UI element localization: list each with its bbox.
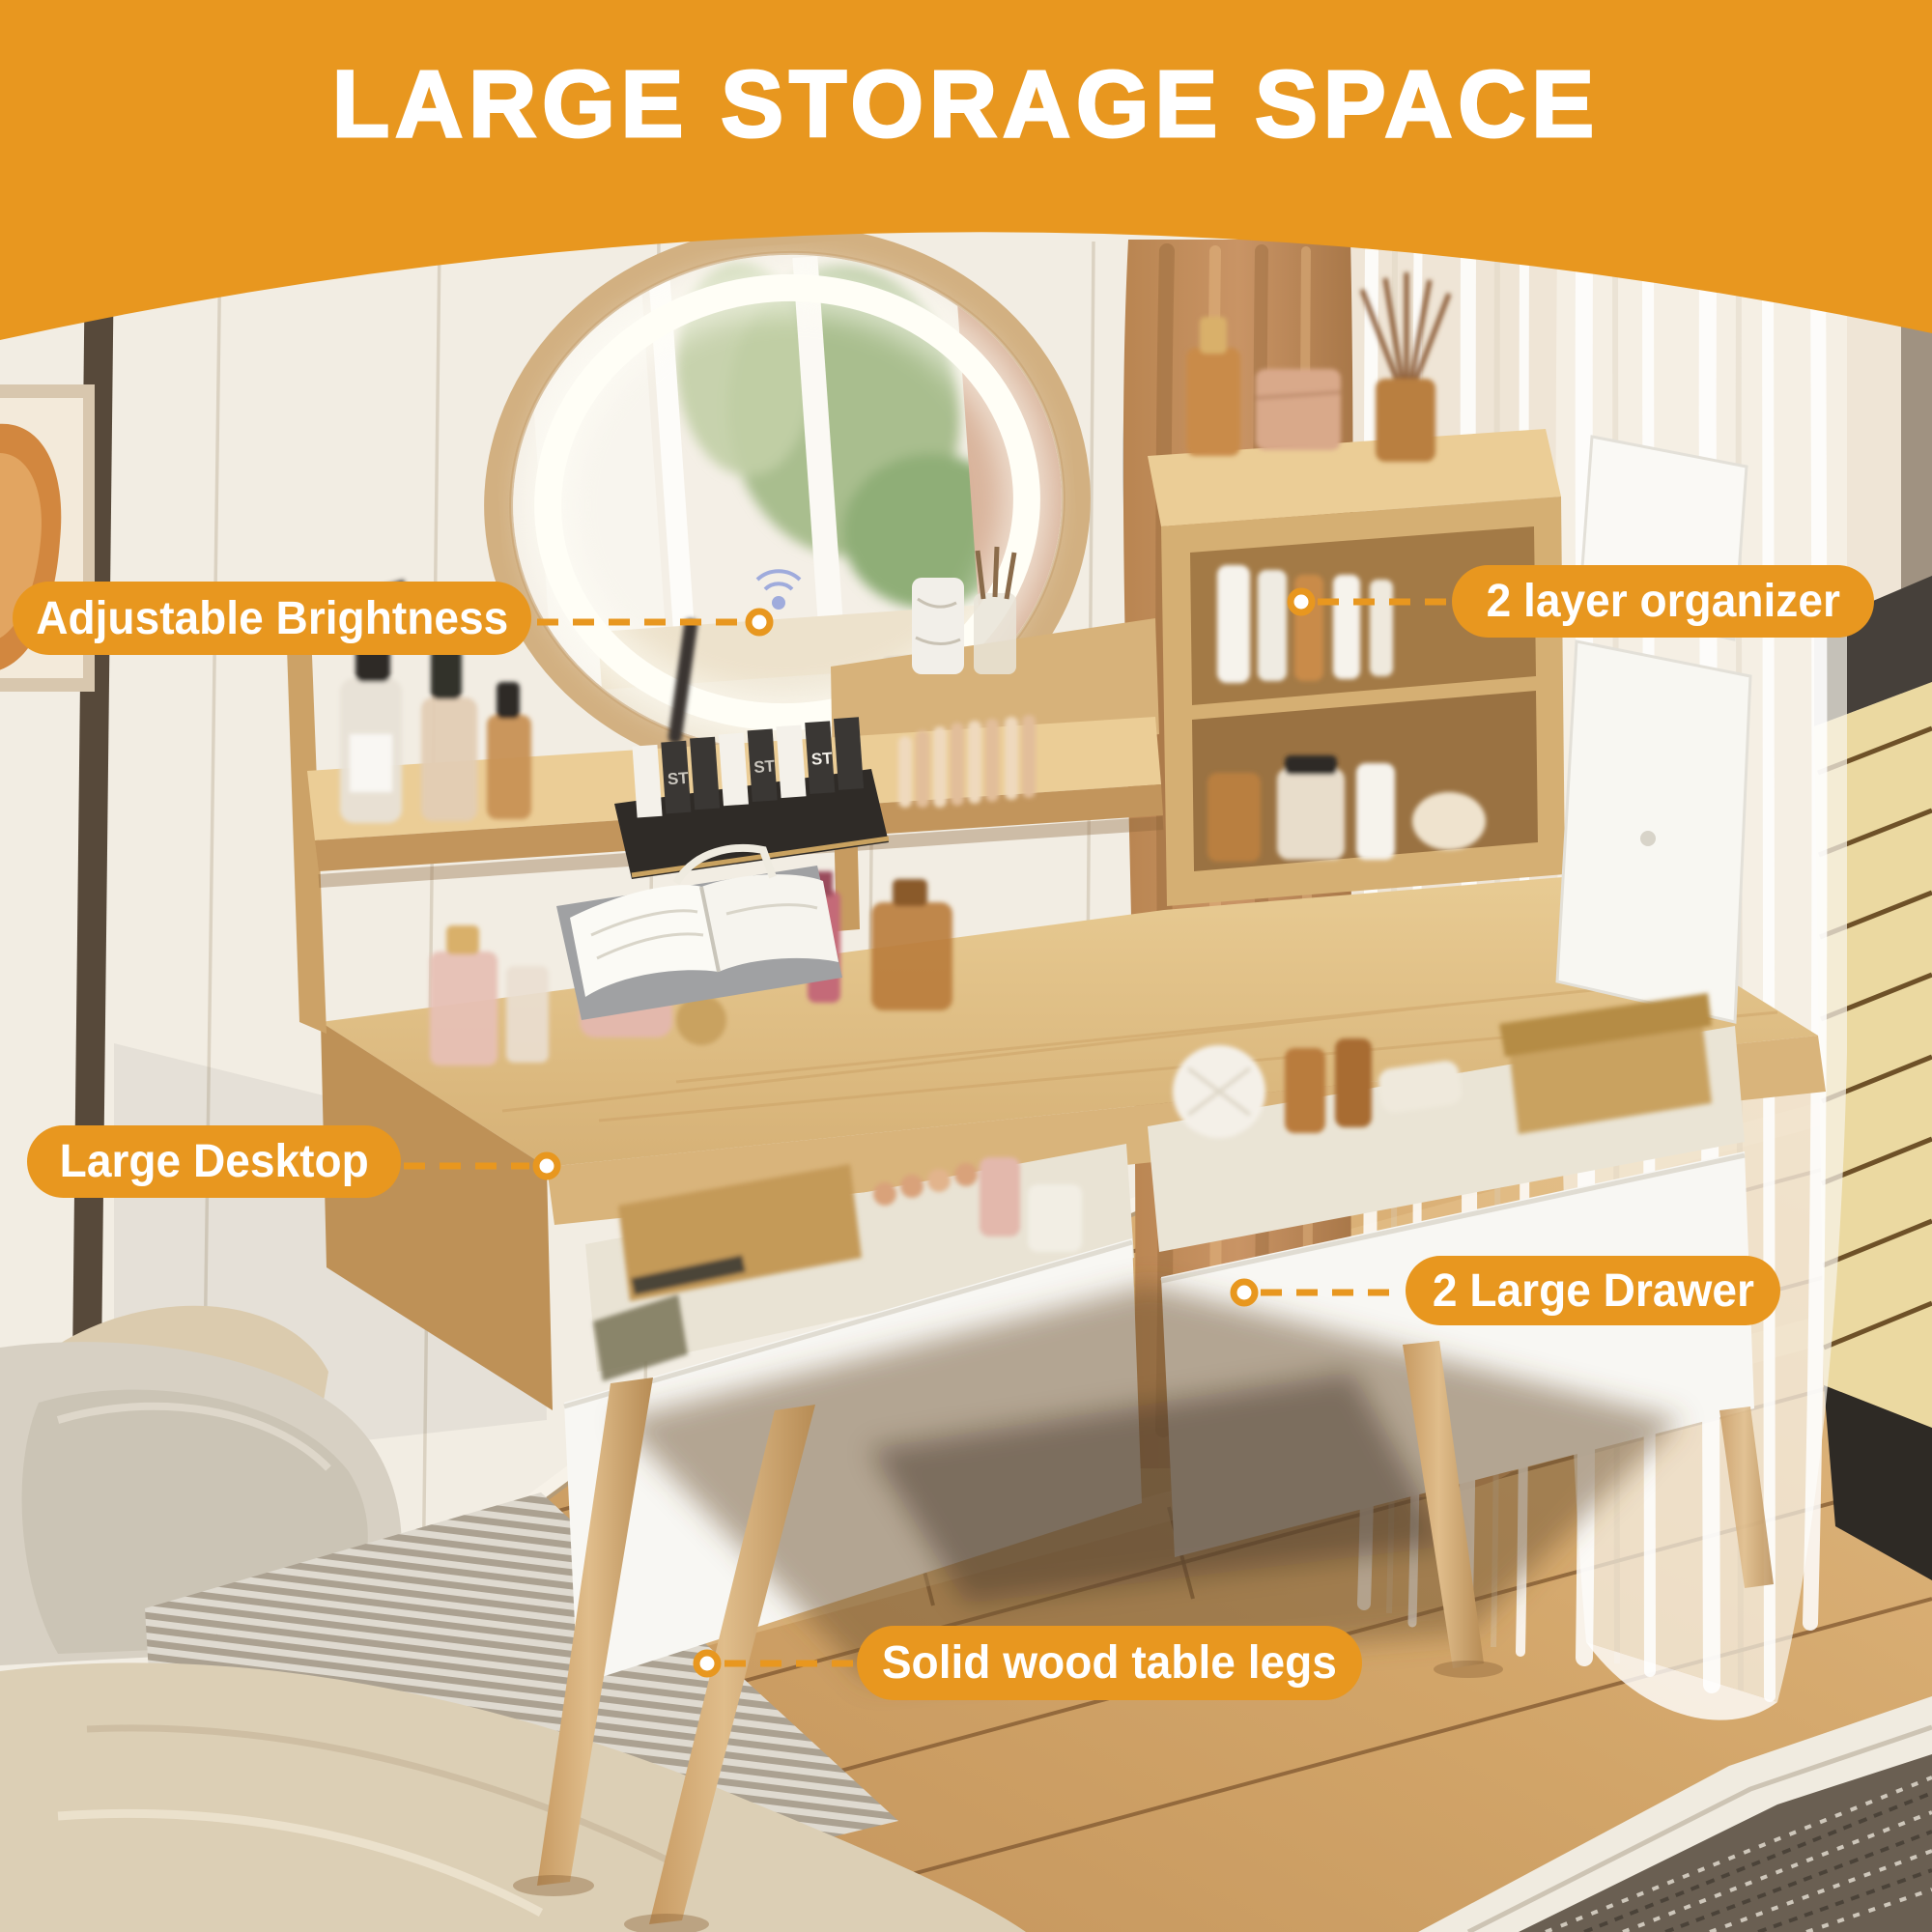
dot-two-large-drawer (1234, 1282, 1255, 1303)
callout-label: Solid wood table legs (882, 1636, 1337, 1690)
dot-solid-wood-legs (696, 1653, 718, 1674)
callout-solid-wood-table-legs: Solid wood table legs (857, 1626, 1362, 1700)
callout-label: Adjustable Brightness (36, 592, 508, 645)
callout-two-layer-organizer: 2 layer organizer (1452, 565, 1874, 638)
callout-label: 2 layer organizer (1486, 575, 1839, 628)
callout-adjustable-brightness: Adjustable Brightness (13, 582, 531, 655)
dot-two-layer-organizer (1291, 591, 1312, 612)
dot-adjustable-brightness (749, 611, 770, 633)
product-infographic: ST ST ST (0, 0, 1932, 1932)
callout-label: 2 Large Drawer (1433, 1264, 1754, 1318)
dot-large-desktop (536, 1155, 557, 1177)
callout-two-large-drawer: 2 Large Drawer (1406, 1256, 1780, 1325)
callout-large-desktop: Large Desktop (27, 1125, 401, 1198)
callout-label: Large Desktop (59, 1135, 368, 1188)
